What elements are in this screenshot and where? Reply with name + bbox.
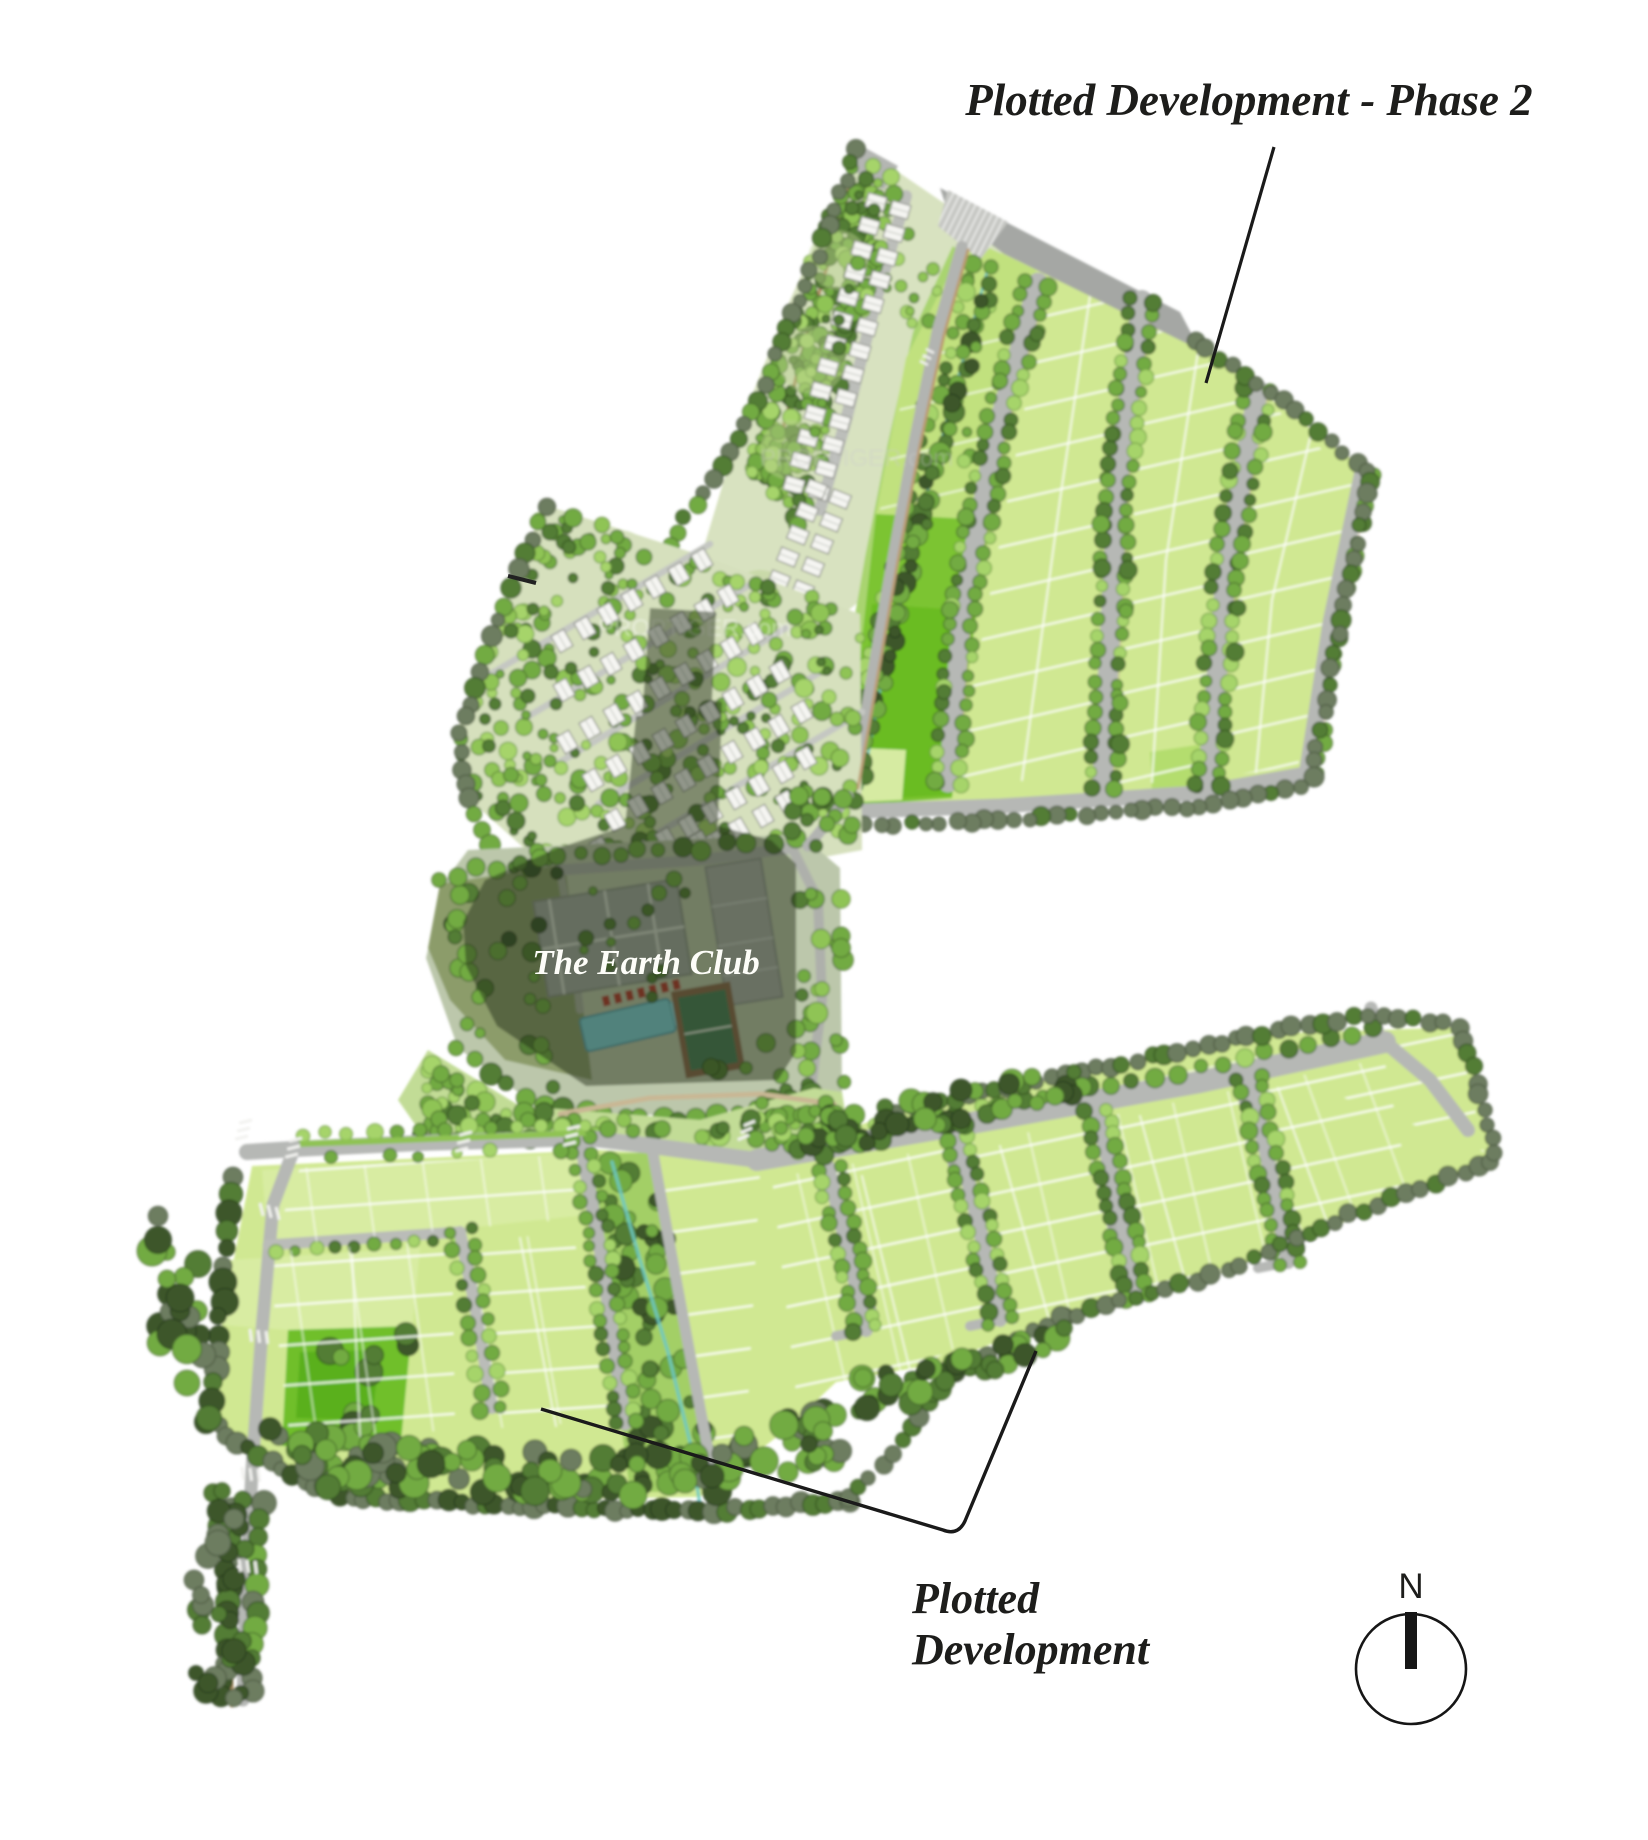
svg-text:PROPTIGER.com: PROPTIGER.com (760, 445, 953, 472)
svg-text:Plotted: Plotted (911, 1574, 1040, 1623)
svg-text:Plotted Development - Phase 2: Plotted Development - Phase 2 (964, 75, 1532, 125)
svg-text:The Earth Club: The Earth Club (532, 943, 760, 982)
svg-text:N: N (1398, 1567, 1423, 1606)
svg-text:Development: Development (911, 1625, 1151, 1674)
